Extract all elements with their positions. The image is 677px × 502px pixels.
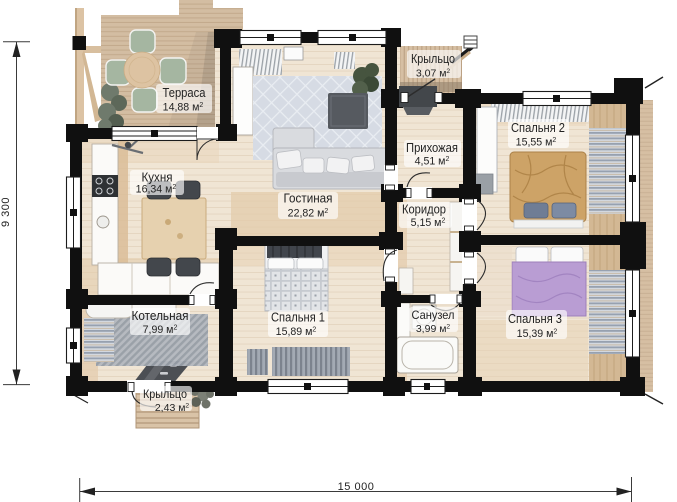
svg-text:7,99 м2: 7,99 м2 bbox=[143, 324, 178, 336]
svg-text:15,39 м2: 15,39 м2 bbox=[517, 328, 558, 340]
svg-text:22,82 м2: 22,82 м2 bbox=[288, 208, 329, 220]
svg-text:15,89 м2: 15,89 м2 bbox=[276, 326, 317, 338]
svg-text:9 300: 9 300 bbox=[0, 197, 12, 227]
svg-text:2,43 м2: 2,43 м2 bbox=[155, 402, 190, 414]
svg-text:Коридор: Коридор bbox=[402, 203, 446, 217]
svg-text:Прихожая: Прихожая bbox=[406, 141, 458, 155]
svg-text:3,99 м2: 3,99 м2 bbox=[416, 323, 451, 335]
svg-text:Спальня 2: Спальня 2 bbox=[511, 121, 565, 135]
svg-text:16,34 м2: 16,34 м2 bbox=[136, 184, 177, 196]
svg-text:Спальня 3: Спальня 3 bbox=[508, 312, 562, 326]
svg-text:5,15 м2: 5,15 м2 bbox=[411, 217, 446, 229]
svg-text:Спальня 1: Спальня 1 bbox=[271, 311, 325, 325]
svg-text:Крыльцо: Крыльцо bbox=[411, 52, 455, 66]
svg-text:Кухня: Кухня bbox=[142, 171, 173, 185]
svg-text:3,07 м2: 3,07 м2 bbox=[416, 68, 451, 80]
svg-text:Гостиная: Гостиная bbox=[284, 192, 333, 206]
svg-text:15 000: 15 000 bbox=[338, 481, 375, 493]
svg-text:14,88 м2: 14,88 м2 bbox=[163, 102, 204, 114]
svg-text:Санузел: Санузел bbox=[412, 308, 455, 322]
svg-text:Терраса: Терраса bbox=[163, 86, 206, 100]
svg-text:Крыльцо: Крыльцо bbox=[143, 387, 187, 401]
svg-text:Котельная: Котельная bbox=[132, 309, 189, 323]
svg-text:15,55 м2: 15,55 м2 bbox=[516, 137, 557, 149]
svg-text:4,51 м2: 4,51 м2 bbox=[415, 156, 450, 168]
